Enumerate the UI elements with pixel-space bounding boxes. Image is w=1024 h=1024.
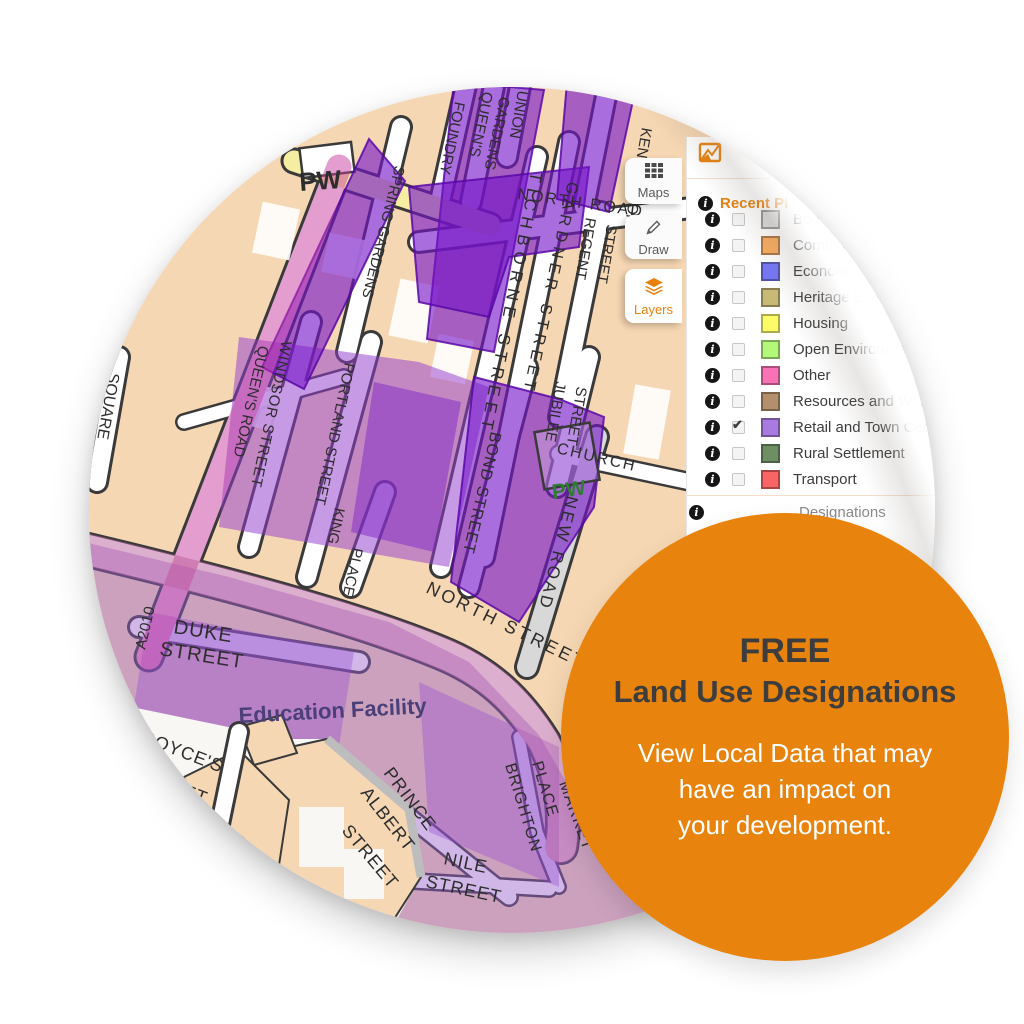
- draw-button[interactable]: Draw: [625, 215, 682, 259]
- layer-label: Resources and Waste: [793, 393, 935, 410]
- layer-color-swatch: [761, 366, 780, 385]
- info-icon[interactable]: i: [705, 472, 720, 487]
- layer-row: i Open Environmen: [705, 338, 914, 360]
- layer-color-swatch: [761, 236, 780, 255]
- street-label: PW: [550, 476, 587, 504]
- layer-color-swatch: [761, 340, 780, 359]
- layer-label: Transport: [793, 471, 857, 488]
- layer-label: Rural Settlement: [793, 445, 905, 462]
- layer-row: i Housing: [705, 312, 848, 334]
- layer-row: i Economy: [705, 260, 856, 282]
- layer-label: Bou: [793, 211, 820, 228]
- layer-checkbox[interactable]: [732, 343, 745, 356]
- layer-row: i Rural Settlement: [705, 442, 905, 464]
- promo-headline-free: FREE: [740, 630, 831, 673]
- layer-checkbox[interactable]: [732, 473, 745, 486]
- grid-icon: [645, 163, 663, 184]
- layer-row: i ✔ Retail and Town Centre: [705, 416, 935, 438]
- layer-checkbox[interactable]: [732, 291, 745, 304]
- layer-checkbox[interactable]: ✔: [732, 421, 745, 434]
- info-icon[interactable]: i: [705, 420, 720, 435]
- layer-checkbox[interactable]: [732, 239, 745, 252]
- layer-label: Heritage Envi: [793, 289, 883, 306]
- layer-label: Commu: [793, 237, 846, 254]
- layer-checkbox[interactable]: [732, 395, 745, 408]
- layer-color-swatch: [761, 314, 780, 333]
- pencil-icon: [645, 219, 662, 241]
- layer-label: Retail and Town Centre: [793, 419, 935, 436]
- promo-offer-circle: FREE Land Use Designations View Local Da…: [561, 513, 1009, 961]
- promo-body-text: View Local Data that may have an impact …: [638, 736, 932, 844]
- panel-divider: [687, 495, 935, 496]
- promo-headline-title: Land Use Designations: [614, 673, 957, 710]
- layer-color-swatch: [761, 262, 780, 281]
- promo-body-line: View Local Data that may: [638, 736, 932, 772]
- info-icon[interactable]: i: [705, 316, 720, 331]
- maps-button-label: Maps: [638, 186, 670, 199]
- layer-row: i Other: [705, 364, 831, 386]
- layer-label: Economy: [793, 263, 856, 280]
- layer-color-swatch: [761, 392, 780, 411]
- maps-button[interactable]: Maps: [625, 158, 682, 204]
- layer-row: i Resources and Waste: [705, 390, 935, 412]
- layer-label: Housing: [793, 315, 848, 332]
- layer-row: i Transport: [705, 468, 857, 490]
- promo-body-line: your development.: [638, 808, 932, 844]
- layer-label: Open Environmen: [793, 341, 914, 358]
- panel-divider: [687, 178, 935, 179]
- info-icon[interactable]: i: [705, 238, 720, 253]
- layers-button-label: Layers: [634, 303, 673, 316]
- info-icon[interactable]: i: [705, 290, 720, 305]
- layer-color-swatch: [761, 470, 780, 489]
- info-icon[interactable]: i: [689, 505, 704, 520]
- info-icon[interactable]: i: [705, 342, 720, 357]
- layers-icon: [644, 277, 664, 301]
- layer-color-swatch: [761, 210, 780, 229]
- layer-checkbox[interactable]: [732, 213, 745, 226]
- layer-checkbox[interactable]: [732, 317, 745, 330]
- layer-checkbox[interactable]: [732, 265, 745, 278]
- info-icon[interactable]: i: [705, 446, 720, 461]
- site-plan-icon: [698, 152, 724, 169]
- info-icon[interactable]: i: [705, 212, 720, 227]
- info-icon[interactable]: i: [705, 394, 720, 409]
- layer-checkbox[interactable]: [732, 369, 745, 382]
- layers-button[interactable]: Layers: [625, 269, 682, 323]
- layer-row: i Commu: [705, 234, 846, 256]
- draw-button-label: Draw: [638, 243, 668, 256]
- layer-color-swatch: [761, 418, 780, 437]
- panel-header: [698, 141, 724, 170]
- info-icon[interactable]: i: [705, 264, 720, 279]
- layer-label: Other: [793, 367, 831, 384]
- layer-row: i Bou: [705, 208, 820, 230]
- layer-color-swatch: [761, 444, 780, 463]
- street-label: PW: [298, 164, 342, 197]
- layer-color-swatch: [761, 288, 780, 307]
- layer-row: i Heritage Envi: [705, 286, 883, 308]
- info-icon[interactable]: i: [705, 368, 720, 383]
- promo-graphic: PW SPRING GARDENS FOUNDRY QUEEN'S GARDEN…: [0, 0, 1024, 1024]
- promo-body-line: have an impact on: [638, 772, 932, 808]
- layer-checkbox[interactable]: [732, 447, 745, 460]
